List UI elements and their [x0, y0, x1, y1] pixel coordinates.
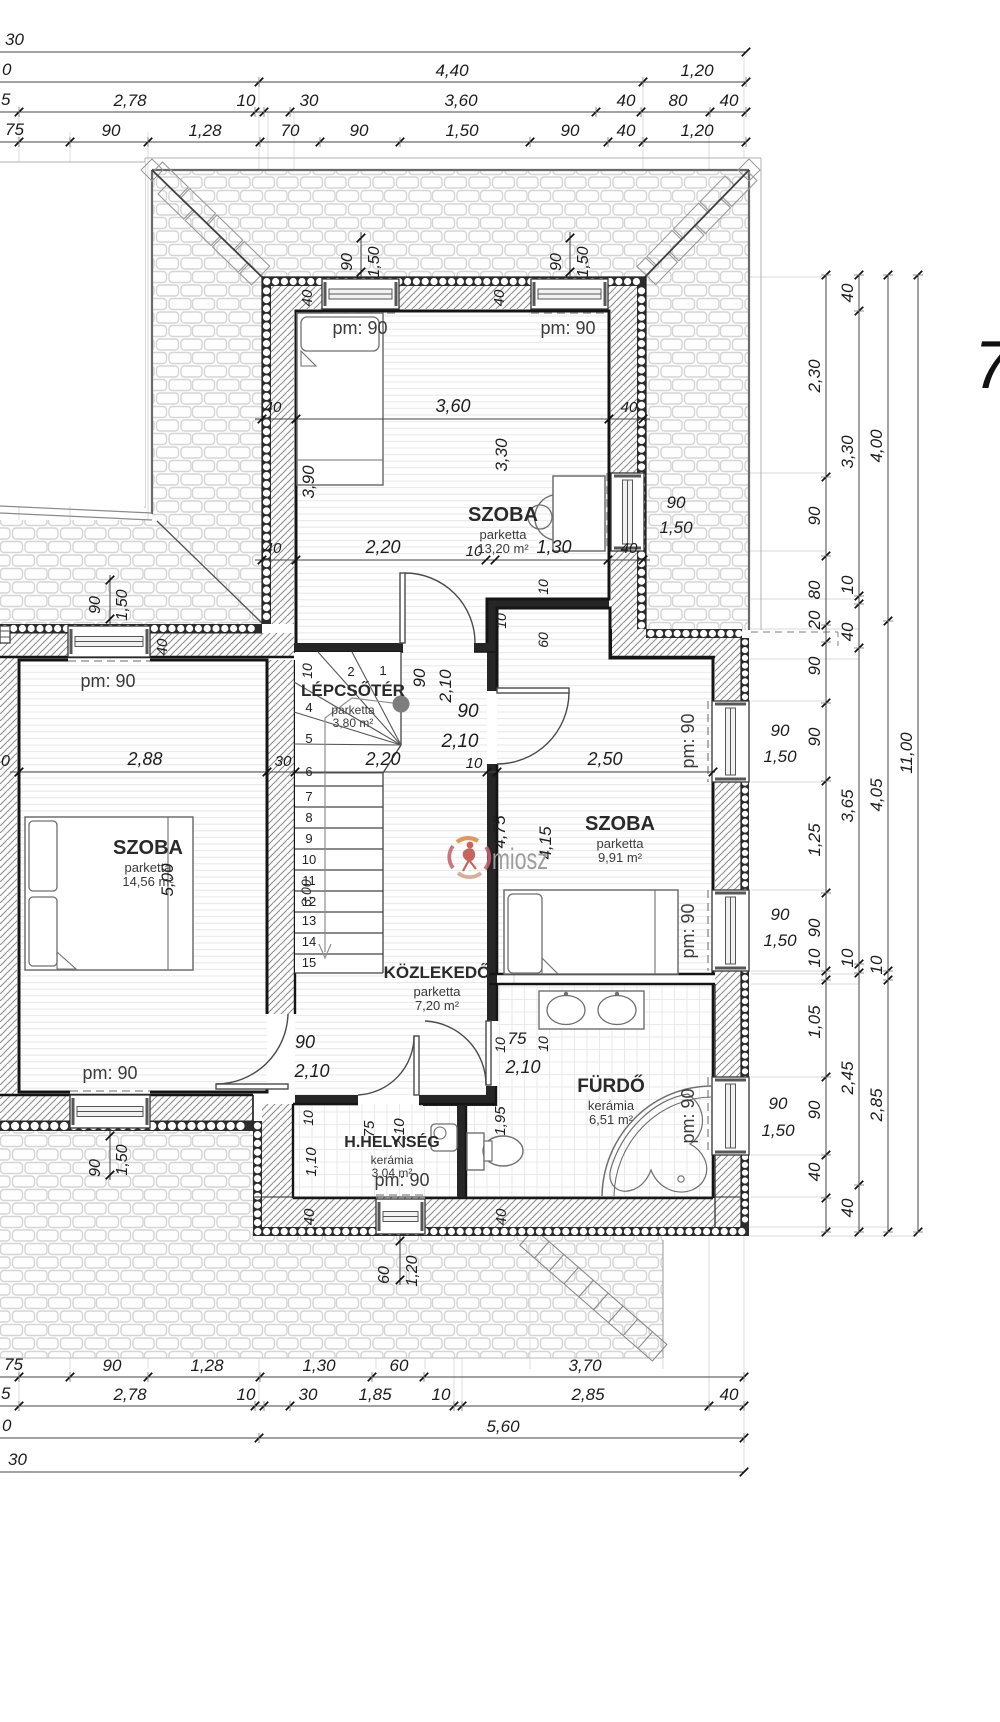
svg-text:0: 0	[1, 753, 10, 770]
svg-text:90: 90	[350, 121, 369, 140]
svg-text:9,91 m²: 9,91 m²	[598, 850, 643, 865]
svg-text:20: 20	[805, 610, 824, 630]
svg-text:2,45: 2,45	[838, 1061, 857, 1096]
svg-text:13,20 m²: 13,20 m²	[477, 541, 529, 556]
svg-text:3,80 m²: 3,80 m²	[333, 716, 374, 730]
svg-text:3,90: 3,90	[299, 465, 318, 499]
svg-text:1,05: 1,05	[805, 1005, 824, 1039]
svg-text:40: 40	[617, 121, 636, 140]
svg-text:KÖZLEKEDŐ: KÖZLEKEDŐ	[384, 963, 491, 982]
svg-text:75: 75	[5, 120, 24, 139]
svg-text:40: 40	[493, 1208, 510, 1225]
svg-text:3,70: 3,70	[568, 1356, 602, 1375]
svg-text:SZOBA: SZOBA	[113, 837, 183, 859]
svg-text:30: 30	[300, 91, 319, 110]
svg-text:10: 10	[492, 1037, 508, 1053]
svg-text:2,78: 2,78	[112, 91, 147, 110]
svg-text:3,60: 3,60	[444, 91, 478, 110]
svg-text:30: 30	[275, 753, 292, 770]
svg-text:2,85: 2,85	[867, 1088, 886, 1123]
svg-text:90: 90	[805, 656, 824, 675]
svg-text:0: 0	[2, 60, 12, 79]
svg-text:90: 90	[771, 721, 790, 740]
svg-text:1,28: 1,28	[188, 121, 222, 140]
svg-text:10: 10	[838, 948, 857, 967]
svg-text:40: 40	[805, 1162, 824, 1181]
svg-text:3,30: 3,30	[838, 435, 857, 469]
svg-text:FÜRDŐ: FÜRDŐ	[577, 1075, 645, 1097]
svg-text:3,60: 3,60	[435, 396, 470, 416]
svg-text:1,20: 1,20	[404, 1255, 421, 1286]
svg-text:90: 90	[561, 121, 580, 140]
svg-text:1: 1	[379, 663, 386, 678]
svg-text:pm: 90: pm: 90	[82, 1063, 137, 1083]
svg-text:kerámia: kerámia	[588, 1098, 635, 1113]
svg-text:parketta: parketta	[480, 527, 528, 542]
svg-text:2,30: 2,30	[805, 359, 824, 394]
svg-text:90: 90	[548, 253, 565, 271]
svg-text:2,10: 2,10	[504, 1057, 540, 1077]
svg-text:1,50: 1,50	[575, 246, 592, 277]
svg-text:4,40: 4,40	[435, 61, 469, 80]
svg-text:2,10: 2,10	[441, 731, 479, 752]
svg-text:10: 10	[237, 91, 256, 110]
svg-text:1,20: 1,20	[680, 61, 714, 80]
svg-text:1,50: 1,50	[445, 121, 479, 140]
svg-text:2,10: 2,10	[436, 669, 455, 704]
svg-text:7: 7	[305, 789, 312, 804]
svg-text:11,00: 11,00	[897, 732, 916, 774]
svg-text:2,50: 2,50	[586, 749, 622, 769]
svg-text:10: 10	[466, 755, 483, 772]
svg-text:40: 40	[491, 289, 508, 306]
svg-text:2,78: 2,78	[112, 1385, 147, 1404]
svg-text:10: 10	[299, 663, 315, 679]
svg-text:0: 0	[2, 1416, 12, 1435]
svg-text:10: 10	[237, 1385, 256, 1404]
svg-text:4,00: 4,00	[867, 429, 886, 463]
svg-text:90: 90	[769, 1094, 788, 1113]
svg-text:1,50: 1,50	[761, 1121, 795, 1140]
svg-text:pm: 90: pm: 90	[80, 671, 135, 691]
svg-text:40: 40	[265, 399, 282, 416]
svg-text:1,50: 1,50	[114, 589, 131, 620]
svg-text:pm: 90: pm: 90	[678, 713, 698, 768]
svg-text:90: 90	[667, 493, 686, 512]
svg-text:pm: 90: pm: 90	[678, 1088, 698, 1143]
svg-text:1,30: 1,30	[536, 537, 571, 557]
svg-text:parketta: parketta	[414, 984, 462, 999]
svg-text:90: 90	[339, 253, 356, 271]
svg-text:40: 40	[838, 622, 857, 641]
svg-text:14: 14	[302, 934, 316, 949]
svg-text:5: 5	[1, 90, 11, 109]
svg-text:10: 10	[805, 948, 824, 967]
svg-text:80: 80	[805, 580, 824, 599]
svg-text:5,60: 5,60	[486, 1417, 520, 1436]
svg-text:90: 90	[457, 701, 479, 722]
svg-text:90: 90	[103, 1356, 122, 1375]
svg-text:30: 30	[8, 1450, 27, 1469]
svg-text:60: 60	[390, 1356, 409, 1375]
svg-text:40: 40	[154, 638, 171, 655]
svg-text:9: 9	[305, 831, 312, 846]
svg-text:2: 2	[347, 664, 354, 679]
svg-text:5: 5	[1, 1384, 11, 1403]
svg-text:90: 90	[295, 1032, 315, 1052]
svg-text:40: 40	[265, 540, 282, 557]
svg-text:10: 10	[302, 852, 316, 867]
svg-text:90: 90	[410, 668, 429, 687]
svg-text:parketta: parketta	[125, 860, 173, 875]
svg-text:1,25: 1,25	[805, 823, 824, 857]
svg-text:3,04 m²: 3,04 m²	[372, 1166, 413, 1180]
svg-text:10: 10	[493, 613, 509, 629]
svg-text:1,30: 1,30	[302, 1356, 336, 1375]
svg-text:10: 10	[535, 1036, 551, 1052]
svg-text:3,65: 3,65	[838, 789, 857, 823]
svg-text:75: 75	[4, 1355, 23, 1374]
svg-text:1,28: 1,28	[190, 1356, 224, 1375]
svg-text:SZOBA: SZOBA	[468, 504, 538, 526]
svg-text:SZOBA: SZOBA	[585, 813, 655, 835]
svg-text:4: 4	[305, 700, 312, 715]
svg-text:10: 10	[867, 955, 886, 974]
svg-text:1,10: 1,10	[303, 1147, 320, 1177]
svg-text:40: 40	[838, 1198, 857, 1217]
svg-text:10: 10	[535, 579, 551, 595]
svg-text:40: 40	[838, 283, 857, 302]
svg-text:40: 40	[720, 1385, 739, 1404]
svg-text:90: 90	[87, 596, 104, 614]
svg-text:2,88: 2,88	[126, 749, 162, 769]
svg-text:5: 5	[305, 731, 312, 746]
svg-text:H.HELYISÉG: H.HELYISÉG	[344, 1132, 439, 1151]
svg-text:pm: 90: pm: 90	[678, 903, 698, 958]
svg-text:parketta: parketta	[597, 836, 645, 851]
svg-text:7,20 m²: 7,20 m²	[415, 998, 460, 1013]
svg-text:40: 40	[621, 540, 638, 557]
svg-text:90: 90	[87, 1159, 104, 1177]
svg-text:90: 90	[771, 905, 790, 924]
svg-text:13: 13	[302, 913, 316, 928]
svg-text:1,85: 1,85	[358, 1385, 392, 1404]
svg-text:parketta: parketta	[331, 703, 375, 717]
svg-text:kerámia: kerámia	[371, 1153, 414, 1167]
svg-text:10: 10	[300, 1110, 316, 1126]
svg-text:LÉPCSŐTÉR: LÉPCSŐTÉR	[301, 681, 405, 700]
svg-text:miosz: miosz	[492, 843, 548, 876]
svg-text:8: 8	[305, 810, 312, 825]
svg-text:1,50: 1,50	[763, 931, 797, 950]
svg-text:90: 90	[102, 121, 121, 140]
svg-text:2,10: 2,10	[293, 1061, 329, 1081]
svg-text:3,30: 3,30	[492, 438, 511, 472]
svg-text:40: 40	[299, 289, 316, 306]
svg-text:60: 60	[376, 1266, 393, 1284]
svg-text:pm: 90: pm: 90	[540, 318, 595, 338]
svg-text:80: 80	[669, 91, 688, 110]
svg-text:2,85: 2,85	[570, 1385, 605, 1404]
svg-text:30: 30	[299, 1385, 318, 1404]
svg-text:1,50: 1,50	[366, 246, 383, 277]
svg-text:30: 30	[5, 30, 24, 49]
svg-text:90: 90	[805, 506, 824, 525]
svg-text:1,50: 1,50	[114, 1144, 131, 1175]
svg-text:1,50: 1,50	[659, 518, 693, 537]
svg-text:4,05: 4,05	[867, 778, 886, 812]
svg-text:40: 40	[720, 91, 739, 110]
svg-text:10: 10	[838, 575, 857, 594]
svg-text:3,00: 3,00	[298, 879, 314, 906]
svg-text:70: 70	[281, 121, 300, 140]
svg-text:90: 90	[805, 1100, 824, 1119]
svg-text:75: 75	[508, 1029, 527, 1048]
svg-text:40: 40	[621, 399, 638, 416]
svg-text:40: 40	[617, 91, 636, 110]
svg-text:pm: 90: pm: 90	[332, 318, 387, 338]
svg-text:7: 7	[974, 327, 1000, 403]
svg-text:90: 90	[805, 918, 824, 937]
svg-text:2,20: 2,20	[364, 537, 400, 557]
svg-text:90: 90	[805, 727, 824, 746]
svg-text:6,51 m²: 6,51 m²	[589, 1112, 634, 1127]
svg-text:2,20: 2,20	[364, 749, 400, 769]
svg-text:60: 60	[535, 632, 551, 648]
svg-text:1,95: 1,95	[492, 1106, 509, 1136]
svg-text:40: 40	[301, 1208, 318, 1225]
svg-text:15: 15	[302, 955, 316, 970]
svg-text:14,56 m²: 14,56 m²	[122, 874, 174, 889]
svg-text:1,20: 1,20	[680, 121, 714, 140]
svg-text:10: 10	[432, 1385, 451, 1404]
svg-text:1,50: 1,50	[763, 747, 797, 766]
